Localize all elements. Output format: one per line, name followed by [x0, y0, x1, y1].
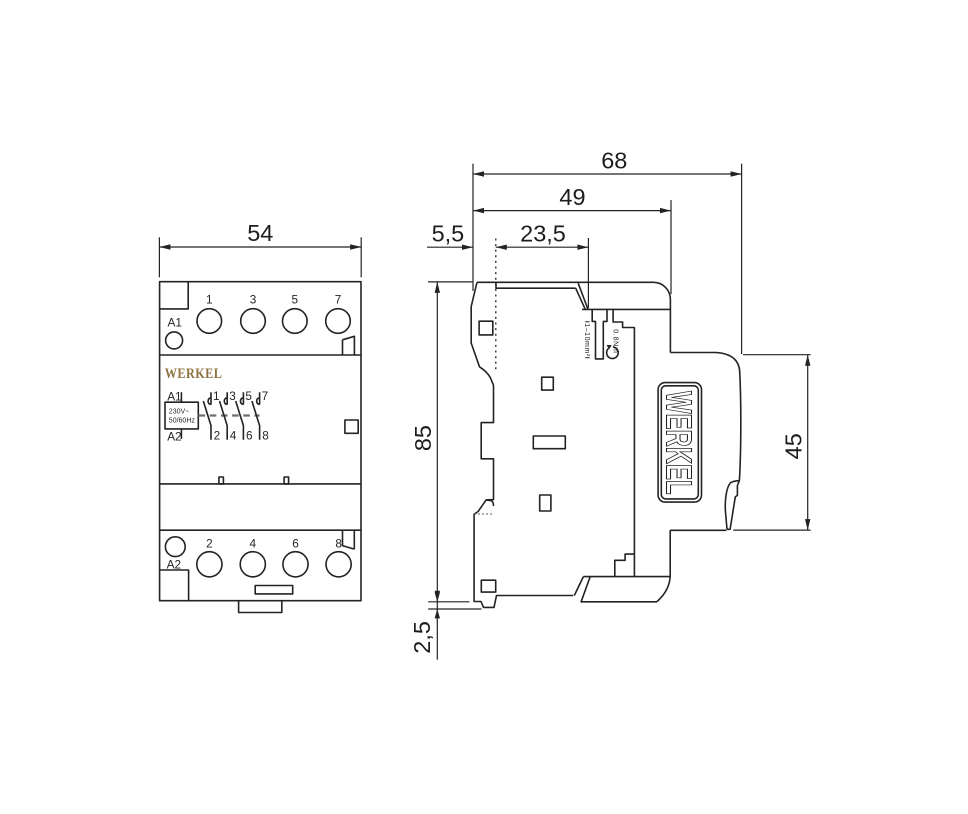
- svg-text:A1: A1: [167, 389, 181, 403]
- svg-text:2: 2: [206, 536, 213, 550]
- svg-text:4: 4: [230, 428, 237, 442]
- svg-text:1: 1: [213, 389, 220, 403]
- svg-text:230V~: 230V~: [169, 409, 189, 416]
- svg-text:5: 5: [245, 389, 252, 403]
- svg-text:5,5: 5,5: [432, 221, 465, 247]
- svg-text:8: 8: [262, 428, 269, 442]
- svg-text:A1: A1: [167, 316, 181, 330]
- svg-text:A2: A2: [167, 557, 181, 571]
- svg-text:49: 49: [559, 184, 585, 210]
- svg-text:8: 8: [335, 536, 342, 550]
- svg-text:3: 3: [229, 389, 236, 403]
- svg-text:6: 6: [292, 536, 299, 550]
- svg-text:WERKEL: WERKEL: [165, 366, 223, 382]
- svg-text:45: 45: [781, 433, 807, 459]
- svg-text:1: 1: [206, 293, 213, 307]
- svg-text:3: 3: [250, 293, 257, 307]
- svg-text:2,5: 2,5: [409, 621, 435, 654]
- svg-text:7: 7: [335, 293, 342, 307]
- svg-text:85: 85: [410, 425, 436, 451]
- svg-text:5: 5: [292, 293, 299, 307]
- svg-text:A2: A2: [167, 430, 181, 444]
- svg-text:WERKEL: WERKEL: [659, 391, 700, 495]
- svg-text:68: 68: [601, 147, 627, 173]
- svg-text:1–10mm²: 1–10mm²: [583, 323, 590, 357]
- svg-text:7: 7: [262, 389, 269, 403]
- svg-text:4: 4: [250, 536, 257, 550]
- svg-text:23,5: 23,5: [520, 221, 566, 247]
- svg-text:54: 54: [247, 220, 273, 246]
- svg-text:2: 2: [214, 428, 221, 442]
- svg-text:6: 6: [246, 428, 253, 442]
- svg-text:50/60Hz: 50/60Hz: [169, 418, 196, 425]
